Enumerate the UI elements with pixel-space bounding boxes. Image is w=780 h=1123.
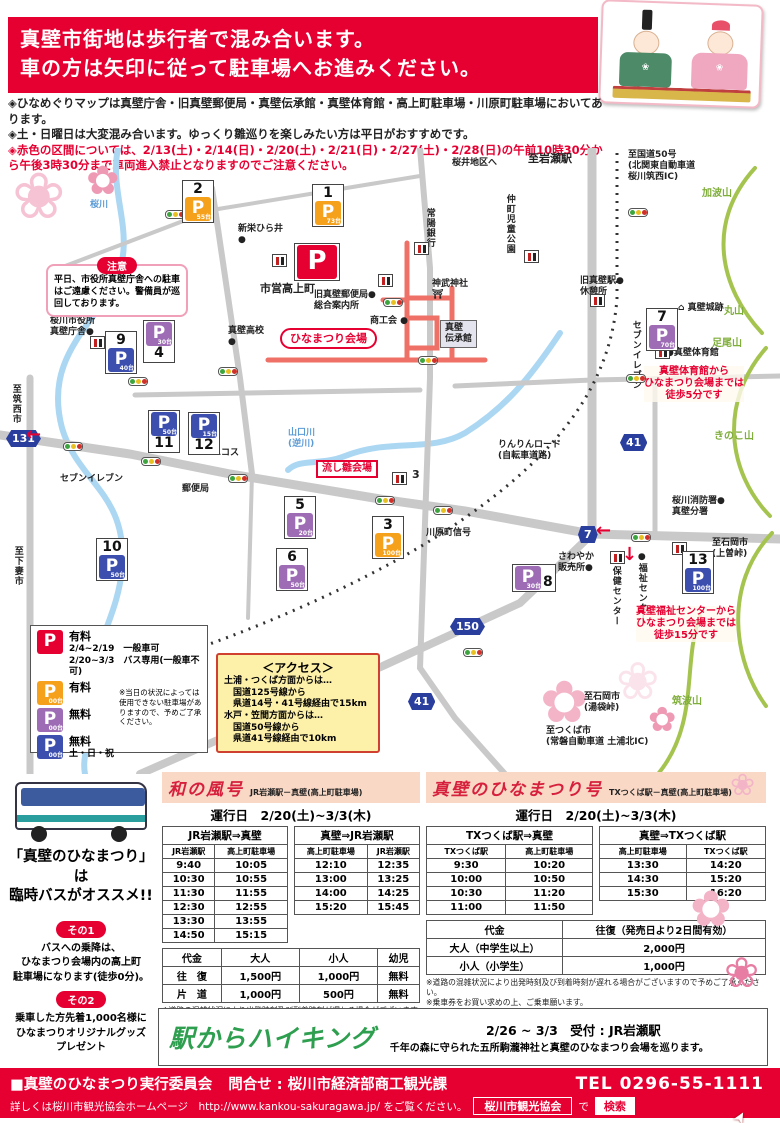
timetable-hinamatsuri-title: 真壁のひなまつり号 [432,775,603,800]
label-parking3-number: 3 [412,468,420,481]
parking-marker-3: 3P100台 [372,516,404,559]
label-rinrin-road: りんりんロード (自転車道路) [498,440,561,462]
parking-number: 6 [279,550,305,565]
parking-number: 11 [151,436,177,451]
label-sakurai-area: 桜井地区へ [452,158,497,169]
column-header: JR岩瀬駅 [367,845,419,859]
hiking-period: 2/26 ~ 3/3 受付 : JR岩瀬駅 [390,1020,757,1039]
time-cell: 12:55 [215,901,288,915]
access-line-4: 水戸・笠間方面からは… [224,711,372,723]
traffic-signal-icon [128,377,148,386]
fare-cell: 往 復 [163,967,222,985]
time-row: 10:0010:50 [427,873,593,887]
parking-p-icon: P30台 [146,322,172,346]
capacity-label: 40台 [120,363,134,372]
time-cell: 9:30 [427,859,506,873]
time-cell: 10:55 [215,873,288,887]
fare-header: 大人 [221,949,299,967]
legend-p-orange: P00台 [37,681,63,705]
direction-header-row: TXつくば駅⇒真壁 [427,827,593,845]
timetable-wanokaze-title: 和の風号 [168,775,244,800]
bus-recommendation: 「真壁のひなまつり」は 臨時バスがオススメ!! その1 バスへの乗降は、 ひなま… [4,778,158,1056]
capacity-label: 73台 [327,216,341,225]
label-to-chikusei: 至筑西市 [10,384,21,424]
parking-p-icon: P100台 [685,568,711,592]
parking-p-icon: P40台 [108,348,134,372]
parking-p-icon: P50台 [151,412,177,436]
time-cell: 13:00 [295,873,368,887]
time-row: 14:3015:20 [600,873,766,887]
time-row: 15:3016:20 [600,887,766,901]
parking-marker-5: 5P20台 [284,496,316,539]
parking-marker-10: 10P50台 [96,538,128,581]
legend-row-red: P有料2/4~2/19 一般車可2/20~3/3 バス専用(一般車不可) [37,630,201,678]
caution-text: 平日、市役所真壁庁舎への駐車はご遠慮ください。警備員が巡回しております。 [54,274,180,310]
time-cell: 14:00 [295,887,368,901]
toilet-icon [90,336,105,349]
footer-committee: ■真壁のひなまつり実行委員会 [10,1073,212,1094]
sakura-decoration: ✿ [690,880,732,938]
mountain-ridge-paths [658,168,772,774]
time-cell: 14:20 [686,859,765,873]
access-line-1: 土浦・つくば方面からは… [224,676,372,688]
parking-number: 12 [191,438,217,453]
footer-search-keyword[interactable]: 桜川市観光協会 [473,1097,572,1115]
legend-note: ※当日の状況によっては使用できない駐車場がありますので、予めご了承ください。 [119,688,203,727]
parking-number: 13 [685,553,711,568]
traffic-signal-icon [375,496,395,505]
parking-number: 9 [108,333,134,348]
time-row: 12:3012:55 [163,901,288,915]
traffic-signal-icon [141,457,161,466]
bus-headline-2: 臨時バスがオススメ!! [9,888,153,904]
girl-doll-icon: ❀ [691,19,749,90]
time-cell: 14:50 [163,929,215,943]
label-to-tsukuba: 至つくば市 (常磐自動車道 土浦北IC) [546,726,648,748]
parking-marker-11: P50台11 [148,410,180,453]
time-row: 13:3013:55 [163,915,288,929]
header-line1: 真壁市街地は歩行者で混み合います。 [20,25,586,54]
fare-header-row: 代金大人小人幼児 [163,949,420,967]
label-nagashibina-venue: 流し雛会場 [316,460,378,478]
label-sawayaka: さわやか 販売所● [558,552,594,574]
toilet-icon [392,472,407,485]
traffic-signal-icon [418,356,438,365]
parking-marker-12: P15台12 [188,412,220,455]
legend-label: 有料 [69,681,91,705]
footer-tel: TEL 0296-55-1111 [576,1074,764,1094]
time-row: 10:3010:55 [163,873,288,887]
label-shiei-takakamicho: 市営高上町 [260,282,315,295]
label-mt-kaba: 加波山 [702,188,732,200]
time-row: 14:5015:15 [163,929,288,943]
fare-row: 大人（中学生以上）2,000円 [427,939,766,957]
direction-title: 真壁⇒TXつくば駅 [600,827,766,845]
label-makabe-castle: ⌂ 真壁城跡 [678,303,724,314]
fare-header: 代金 [427,921,563,939]
time-row: 12:1012:35 [295,859,420,873]
hiking-banner: 駅からハイキング 2/26 ~ 3/3 受付 : JR岩瀬駅 千年の森に守られた… [158,1008,768,1066]
label-to-ishioka-yubukuro: 至石岡市 (湯袋峠) [584,692,620,714]
notice-1: ◈ひなめぐりマップは真壁庁舎・旧真壁郵便局・真壁伝承館・真壁体育館・高上町駐車場… [8,96,608,127]
label-post-office: 郵便局 [182,484,209,495]
parking-number: 1 [315,186,341,201]
sakura-decoration: ✿ [86,158,120,204]
label-seven-eleven-west: セブンイレブン [60,474,123,485]
traffic-signal-icon [628,208,648,217]
time-cell: 12:35 [367,859,419,873]
time-row: 10:3011:20 [427,887,593,901]
toilet-icon [378,274,393,287]
notice-2: ◈土・日曜日は大変混み合います。ゆっくり雛巡りを楽しみたい方は平日がおすすめです… [8,127,608,143]
parking-number: 7 [649,310,675,325]
toilet-icon [590,294,605,307]
flyer-page: 真壁市街地は歩行者で混み合います。 車の方は矢印に従って駐車場へお進みください。… [0,0,780,1123]
bus-illustration [11,778,151,842]
access-line-3: 県道14号・41号線経由で15km [224,699,372,711]
parking-p-icon: P20台 [287,513,313,537]
capacity-label: 15台 [203,429,217,438]
time-cell: 15:45 [367,901,419,915]
capacity-label: 55台 [197,212,211,221]
traffic-signal-icon [63,442,83,451]
legend-label: 無料 [69,708,91,732]
footer-contact: 問合せ : 桜川市経済部商工観光課 [228,1073,447,1094]
fare-cell: 無料 [378,985,420,1003]
time-cell: 12:10 [295,859,368,873]
access-title: ＜アクセス＞ [224,659,372,676]
time-cell: 11:00 [427,901,506,915]
access-lines: 土浦・つくば方面からは… 国道125号線から 県道14号・41号線経由で15km… [224,676,372,746]
column-header: 高上町駐車場 [295,845,368,859]
time-cell: 13:30 [600,859,687,873]
time-cell: 10:05 [215,859,288,873]
label-makabe-highschool: 真壁高校 ● [228,326,264,348]
label-sakura-river: 桜川 [90,200,108,211]
direction-header-row: JR岩瀬駅⇒真壁 [163,827,288,845]
timetable-wanokaze: 和の風号 JR岩瀬駅－真壁(高上町駐車場) 運行日 2/20(土)~3/3(木)… [162,772,420,1036]
legend-p-purple: P00台 [37,708,63,732]
timetable-hinamatsuri-titlebar: 真壁のひなまつり号 TXつくば駅－真壁(高上町駐車場) [426,772,766,803]
map: 注意 平日、市役所真壁庁舎への駐車はご遠慮ください。警備員が巡回しております。 … [0,148,780,774]
timetable-wanokaze-fare: 代金大人小人幼児往 復1,500円1,000円無料片 道1,000円500円無料 [162,948,420,1003]
time-cell: 14:25 [367,887,419,901]
capacity-label: 100台 [692,583,711,592]
footer-homepage-line[interactable]: 詳しくは桜川市観光協会ホームページ http://www.kankou-saku… [10,1099,467,1114]
toilet-icon [610,551,625,564]
time-cell: 11:30 [163,887,215,901]
fare-row: 小人（小学生）1,000円 [427,957,766,975]
time-cell: 12:30 [163,901,215,915]
capacity-label: 100台 [382,548,401,557]
note-fukushi-walk: 真壁福祉センターから ひなまつり会場までは 徒歩15分です [636,606,736,642]
time-row: 9:4010:05 [163,859,288,873]
parking-number: 4 [146,346,172,361]
bus-headline-1: 「真壁のひなまつり」は [9,849,154,885]
parking-marker-8: P30台8 [512,564,556,592]
boy-doll-icon: ❀ [619,9,674,88]
capacity-label: 50台 [111,570,125,579]
label-mt-tsukuba: 筑波山 [672,696,702,708]
parking-p-icon: P50台 [99,555,125,579]
header-line2: 車の方は矢印に従って駐車場へお進みください。 [20,54,586,83]
hina-dolls-illustration: ❀ ❀ [598,0,764,109]
label-kawaharacho-signal: 川原町信号 [426,528,471,539]
parking-p-icon: P100台 [375,533,401,557]
parking-marker-13: 13P100台 [682,551,714,594]
caution-title: 注意 [97,257,137,274]
capacity-label: 20台 [299,528,313,537]
bus-tip1-text: バスへの乗降は、 ひなまつり会場内の高上町 駐車場になります(徒歩0分)。 [4,942,158,986]
time-cell: 10:00 [427,873,506,887]
parking-p-icon: P15台 [191,414,217,438]
time-cell: 13:25 [367,873,419,887]
direction-header-row: 真壁⇒TXつくば駅 [600,827,766,845]
traffic-signal-icon [383,298,403,307]
fare-header: 代金 [163,949,222,967]
fare-header: 往復（発売日より2日間有効） [563,921,766,939]
hiking-logo: 駅からハイキング [169,1019,376,1055]
time-cell: 11:55 [215,887,288,901]
timetable-wanokaze-date: 運行日 2/20(土)~3/3(木) [162,803,420,826]
parking-marker-2: 2P55台 [182,180,214,223]
access-line-6: 県道41号線経由で10km [224,734,372,746]
capacity-label: 70台 [661,340,675,349]
label-yamaguchi-river: 山口川 (逆川) [288,428,315,450]
fare-cell: 500円 [299,985,377,1003]
search-button[interactable]: 検索 [595,1097,635,1115]
sakura-decoration: ❀ [724,948,759,997]
fare-cell: 片 道 [163,985,222,1003]
parking-p-icon: P30台 [515,566,541,590]
label-jinmu-shrine: 神武神社 ⛩ [432,279,468,301]
parking-marker-1: 1P73台 [312,184,344,227]
time-cell: 13:30 [163,915,215,929]
parking-number: 5 [287,498,313,513]
time-cell: 10:30 [427,887,506,901]
fare-header: 幼児 [378,949,420,967]
caution-box: 注意 平日、市役所真壁庁舎への駐車はご遠慮ください。警備員が巡回しております。 [46,264,188,317]
time-row: 14:0014:25 [295,887,420,901]
capacity-label: 50台 [163,427,177,436]
traffic-signal-icon [218,367,238,376]
toilet-icon [272,254,287,267]
legend-p-blue: P00台 [37,735,63,761]
timetable-hinamatsuri-subtitle: TXつくば駅－真壁(高上町駐車場) [609,787,732,798]
label-old-post-office: 旧真壁郵便局● 総合案内所 [314,290,376,312]
traffic-signal-icon [228,474,248,483]
timetable-wanokaze-tables: JR岩瀬駅⇒真壁JR岩瀬駅高上町駐車場9:4010:0510:3010:5511… [162,826,420,943]
parking-number: 3 [375,518,401,533]
column-header-row: 高上町駐車場JR岩瀬駅 [295,845,420,859]
timetable-note-2: ※乗車券をお買い求めの上、ご乗車願います。 [426,998,766,1008]
note-gym-walk: 真壁体育館から ひなまつり会場までは 徒歩5分です [644,366,744,402]
badge-150: 150 [450,618,485,635]
direction-title: TXつくば駅⇒真壁 [427,827,593,845]
time-cell: 13:55 [215,915,288,929]
label-city-office: 桜川市役所 真壁庁舎● [50,316,95,338]
timetable-hinamatsuri-date: 運行日 2/20(土)~3/3(木) [426,803,766,826]
bus-tip1-label: その1 [56,921,107,938]
legend-row-blue: P00台無料土・日・祝 [37,735,201,761]
time-row: 9:3010:20 [427,859,593,873]
traffic-signal-icon [626,374,646,383]
venue-label: ひなまつり会場 [280,328,377,349]
label-shokokai: 商工会 ● [370,316,408,327]
direction-table: TXつくば駅⇒真壁TXつくば駅高上町駐車場9:3010:2010:0010:50… [426,826,593,915]
toilet-icon [524,250,539,263]
label-nakamachi-park: 仲町児童公園 [504,194,515,254]
bus-headline: 「真壁のひなまつり」は 臨時バスがオススメ!! [4,848,158,907]
direction-table: JR岩瀬駅⇒真壁JR岩瀬駅高上町駐車場9:4010:0510:3010:5511… [162,826,288,943]
time-cell: 10:20 [506,859,593,873]
fare-cell: 1,000円 [221,985,299,1003]
capacity-label: 30台 [158,337,172,346]
time-cell: 15:15 [215,929,288,943]
parking-number: 8 [543,575,553,590]
column-header: JR岩瀬駅 [163,845,215,859]
arrow-left-west-road: ← [26,424,41,446]
direction-header-row: 真壁⇒JR岩瀬駅 [295,827,420,845]
direction-title: JR岩瀬駅⇒真壁 [163,827,288,845]
timetable-wanokaze-subtitle: JR岩瀬駅－真壁(高上町駐車場) [250,787,362,798]
parking-p-icon: P73台 [315,201,341,225]
fare-row: 往 復1,500円1,000円無料 [163,967,420,985]
label-mt-maru: 丸山 [724,306,744,318]
bus-tip2-text: 乗車した方先着1,000名様に ひなまつりオリジナルグッズ プレゼント [4,1012,158,1056]
arrow-left-route7: ← [596,520,611,542]
parking-p-icon: P55台 [185,197,211,221]
label-mt-kinoko: きのこ山 [714,431,754,443]
fare-cell: 1,500円 [221,967,299,985]
traffic-signal-icon [463,648,483,657]
time-cell: 15:20 [295,901,368,915]
footer-de: で [578,1099,589,1114]
traffic-signal-icon [433,506,453,515]
access-line-2: 国道125号線から [224,688,372,700]
footer-bar: ■真壁のひなまつり実行委員会 問合せ : 桜川市経済部商工観光課 TEL 029… [0,1068,780,1118]
time-cell: 11:50 [506,901,593,915]
traffic-signal-icon [631,533,651,542]
column-header: TXつくば駅 [427,845,506,859]
time-cell: 15:30 [600,887,687,901]
label-to-iwase-station: 至岩瀬駅 [528,152,572,165]
legend-label: 有料2/4~2/19 一般車可2/20~3/3 バス専用(一般車不可) [69,630,201,678]
time-cell: 14:30 [600,873,687,887]
parking-number: 10 [99,540,125,555]
column-header: 高上町駐車場 [600,845,687,859]
label-denshokan: 真壁 伝承館 [440,320,477,348]
badge-7: 7 [578,526,598,543]
rinrin-road-path [30,153,617,693]
parking-marker-7: 7P70台 [646,308,678,351]
time-row: 13:3014:20 [600,859,766,873]
toilet-icon [414,242,429,255]
parking-legend: P有料2/4~2/19 一般車可2/20~3/3 バス専用(一般車不可)P00台… [30,625,208,753]
parking-marker-takakamicho: P [294,243,340,281]
bus-tip2-label: その2 [56,991,107,1008]
time-row: 13:0013:25 [295,873,420,887]
capacity-label: 30台 [527,581,541,590]
column-header: TXつくば駅 [686,845,765,859]
parking-p-icon: P [297,245,337,279]
badge-41-south: 41 [408,693,435,710]
time-cell: 11:20 [506,887,593,901]
time-row: 11:0011:50 [427,901,593,915]
time-cell: 10:50 [506,873,593,887]
access-box: ＜アクセス＞ 土浦・つくば方面からは… 国道125号線から 県道14号・41号線… [216,653,380,753]
label-to-ishioka-kamiso: 至石岡市 (上曽峠) [712,538,748,560]
badge-41-north: 41 [620,434,647,451]
sakura-decoration: ❀ [12,160,66,234]
parking-number: 2 [185,182,211,197]
hiking-description: 千年の森に守られた五所駒瀧神社と真壁のひなまつり会場を巡ります。 [390,1039,757,1054]
column-header-row: TXつくば駅高上町駐車場 [427,845,593,859]
label-to-route50: 至国道50号 (北関東自動車道 桜川筑西IC) [628,150,695,182]
header-banner: 真壁市街地は歩行者で混み合います。 車の方は矢印に従って駐車場へお進みください。 [8,17,598,93]
parking-marker-6: 6P50台 [276,548,308,591]
label-shinei-hirai: 新栄ひら井 ● [238,224,283,246]
time-cell: 10:30 [163,873,215,887]
direction-table: 真壁⇒JR岩瀬駅高上町駐車場JR岩瀬駅12:1012:3513:0013:251… [294,826,420,915]
time-row: 15:2015:45 [295,901,420,915]
parking-p-icon: P70台 [649,325,675,349]
legend-label: 無料土・日・祝 [69,735,114,761]
fare-header: 小人 [299,949,377,967]
time-cell: 9:40 [163,859,215,873]
fare-cell: 無料 [378,967,420,985]
timetable-wanokaze-titlebar: 和の風号 JR岩瀬駅－真壁(高上町駐車場) [162,772,420,803]
fare-row: 片 道1,000円500円無料 [163,985,420,1003]
column-header: 高上町駐車場 [215,845,288,859]
direction-title: 真壁⇒JR岩瀬駅 [295,827,420,845]
parking-marker-4: P30台4 [143,320,175,363]
fare-cell: 1,000円 [299,967,377,985]
fare-cell: 大人（中学生以上） [427,939,563,957]
access-line-5: 国道50号線から [224,723,372,735]
legend-p-red: P [37,630,63,678]
direction-table: 真壁⇒TXつくば駅高上町駐車場TXつくば駅13:3014:2014:3015:2… [599,826,766,901]
parking-p-icon: P50台 [279,565,305,589]
fare-cell: 小人（小学生） [427,957,563,975]
label-hoken-center: 保健センター [610,566,621,626]
column-header-row: 高上町駐車場TXつくば駅 [600,845,766,859]
column-header: 高上町駐車場 [506,845,593,859]
capacity-label: 50台 [291,580,305,589]
parking-marker-9: 9P40台 [105,331,137,374]
sakura-decoration: ❀ [730,768,755,803]
label-to-shimotsuma: 至下妻市 [12,546,23,586]
label-fire-station: 桜川消防署● 真壁分署 [672,496,725,518]
column-header-row: JR岩瀬駅高上町駐車場 [163,845,288,859]
time-row: 11:3011:55 [163,887,288,901]
p-letter: P [307,246,326,276]
timetable-note-1: ※道路の混雑状況により出発時刻及び到着時刻が遅れる場合がございますので予めご了承… [426,978,766,998]
